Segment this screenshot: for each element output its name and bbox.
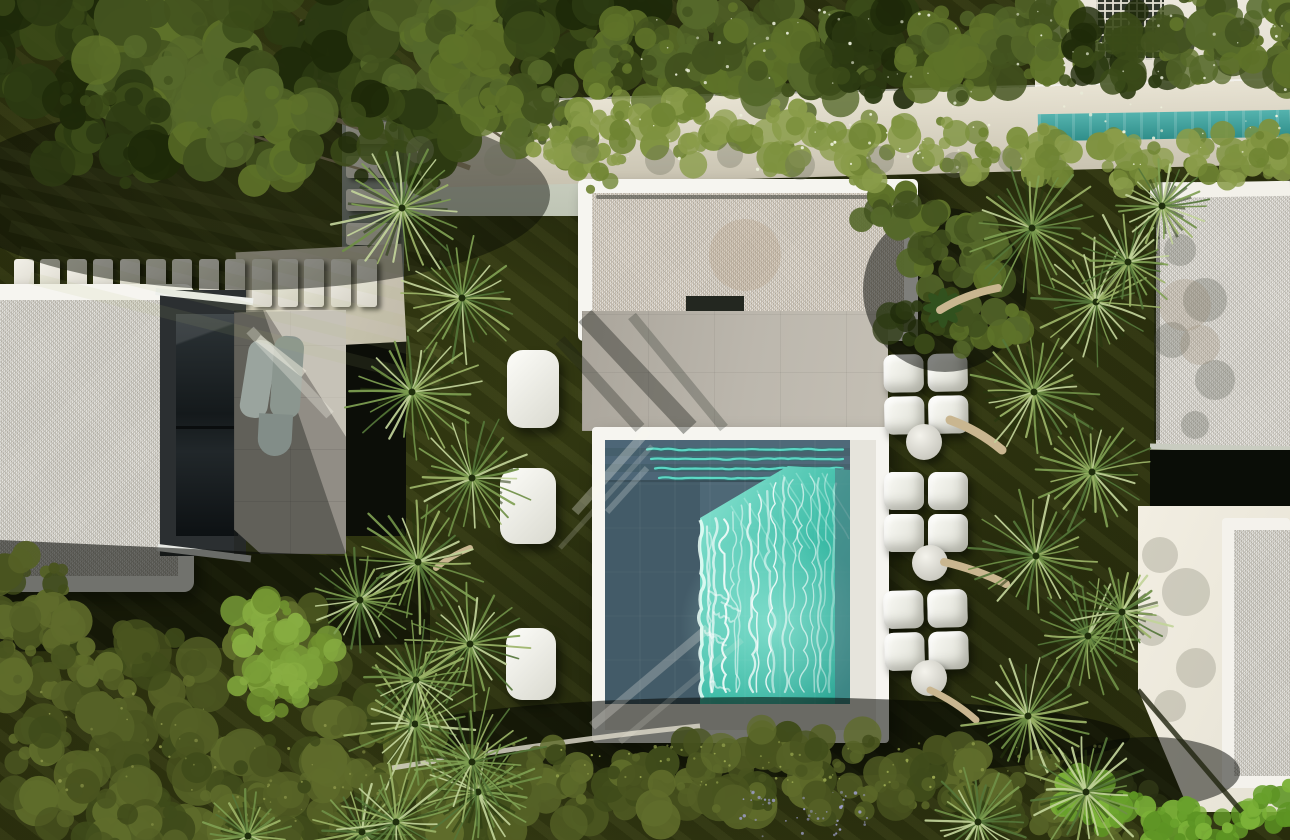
walkway-slat (304, 259, 324, 307)
lap-pool-strip (1038, 110, 1290, 141)
plunge-pool (592, 427, 889, 743)
lounger-cushion (927, 589, 968, 628)
pool-step (605, 440, 850, 448)
ladder-slat (346, 223, 398, 245)
lounger-cushion (883, 354, 924, 393)
void-strip (336, 340, 406, 536)
side-table (911, 660, 947, 696)
ladder-slat (346, 122, 398, 144)
daybed-pad (507, 350, 559, 428)
pool-terrace (582, 311, 888, 431)
roof-gap (1150, 450, 1290, 508)
lounger-group (884, 472, 968, 552)
walkway-slat (252, 259, 272, 307)
east-roof-gravel-inset (1234, 530, 1290, 776)
aerial-garden-photo (0, 0, 1290, 840)
walkway-slat (331, 259, 351, 307)
side-table (906, 424, 942, 460)
side-table (912, 545, 948, 581)
lattice-vent (1096, 0, 1164, 60)
villa-skylight-window (176, 314, 238, 536)
ladder-slat (346, 156, 398, 178)
east-roof-upper-edge (1150, 181, 1290, 198)
lounger-cushion (928, 472, 968, 510)
east-roof-upper (1156, 182, 1290, 448)
lounger-cushion (884, 472, 924, 510)
lounger-cushion (884, 514, 924, 552)
daybed-pad (506, 628, 556, 700)
lounger-cushion (927, 353, 968, 392)
lounger-group (883, 353, 968, 434)
water-edge-shade (835, 468, 850, 704)
daybed-pad (500, 468, 556, 544)
lounger-group (883, 589, 969, 671)
ladder-slat (346, 189, 398, 211)
pool-water (605, 440, 850, 704)
step-ripple (651, 458, 843, 459)
pavilion-roof-groove (596, 195, 872, 199)
window-mullion (176, 426, 238, 429)
walkway-slat (357, 259, 377, 307)
lounger-cushion (883, 590, 924, 629)
walkway-slat (278, 259, 298, 307)
